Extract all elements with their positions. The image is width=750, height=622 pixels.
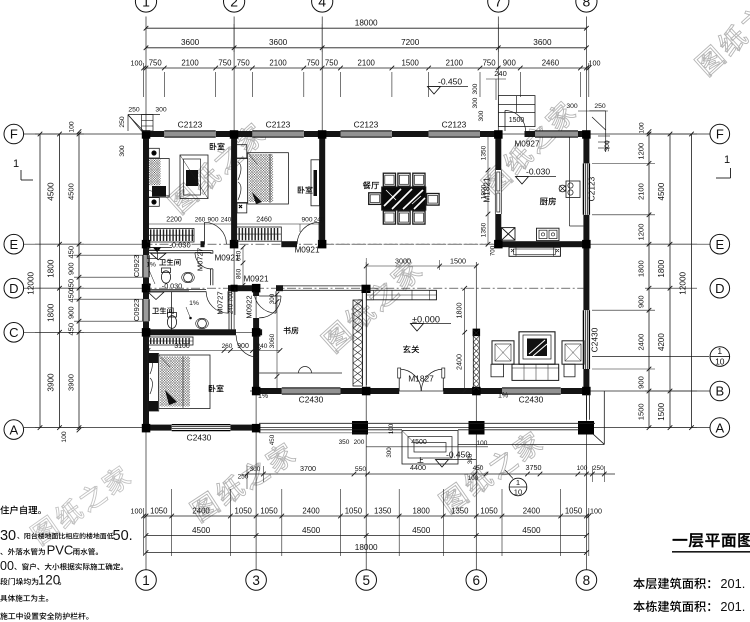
svg-text:300: 300 <box>467 453 474 464</box>
svg-text:3600: 3600 <box>269 38 288 47</box>
svg-text:100: 100 <box>590 506 602 515</box>
svg-text:700: 700 <box>490 245 497 256</box>
svg-text:M0727: M0727 <box>196 248 205 271</box>
svg-text:2100: 2100 <box>446 58 464 67</box>
svg-text:M0727: M0727 <box>216 291 225 314</box>
svg-text:900: 900 <box>301 217 312 224</box>
svg-text:1500: 1500 <box>402 58 420 67</box>
svg-text:2460: 2460 <box>256 217 272 224</box>
svg-text:2400: 2400 <box>637 334 646 351</box>
svg-text:1800: 1800 <box>657 259 666 277</box>
svg-text:200: 200 <box>354 439 365 446</box>
svg-text:1800: 1800 <box>455 303 464 319</box>
svg-text:4500: 4500 <box>412 526 431 535</box>
svg-text:300: 300 <box>269 293 276 304</box>
svg-text:1: 1 <box>13 158 19 170</box>
svg-text:C2430: C2430 <box>519 395 544 405</box>
svg-text:A: A <box>715 420 724 435</box>
svg-text:3600: 3600 <box>181 38 200 47</box>
svg-text:1: 1 <box>516 478 520 487</box>
svg-text:260: 260 <box>222 343 233 350</box>
svg-text:-0.030: -0.030 <box>162 282 182 291</box>
svg-text:2200: 2200 <box>166 217 182 224</box>
svg-text:2100: 2100 <box>181 58 199 67</box>
svg-text:3750: 3750 <box>526 463 542 472</box>
svg-text:2400: 2400 <box>302 506 320 515</box>
svg-text:4500: 4500 <box>522 526 541 535</box>
svg-text:450: 450 <box>269 434 276 445</box>
svg-text:860: 860 <box>236 268 243 279</box>
svg-text:3060: 3060 <box>269 333 276 348</box>
svg-text:750: 750 <box>149 58 163 67</box>
svg-text:240: 240 <box>314 217 325 224</box>
svg-text:1%: 1% <box>189 300 199 307</box>
svg-text:100: 100 <box>388 423 395 434</box>
svg-text:F: F <box>10 127 18 142</box>
svg-text:C2430: C2430 <box>299 395 324 405</box>
svg-text:C2123: C2123 <box>587 176 597 201</box>
svg-text:100: 100 <box>131 59 143 68</box>
svg-text:201.: 201. <box>720 599 745 614</box>
svg-text:300: 300 <box>119 145 126 157</box>
svg-text:C2430: C2430 <box>590 327 600 352</box>
svg-text:1: 1 <box>142 573 150 588</box>
svg-text:4400: 4400 <box>410 463 426 472</box>
svg-text:240: 240 <box>257 343 268 350</box>
svg-text:1500: 1500 <box>637 403 646 420</box>
svg-text:C0923: C0923 <box>132 255 141 277</box>
svg-text:450: 450 <box>67 290 76 303</box>
svg-text:1%: 1% <box>498 393 508 400</box>
svg-text:900: 900 <box>637 295 646 308</box>
svg-text:900: 900 <box>637 376 646 389</box>
svg-text:4500: 4500 <box>192 526 211 535</box>
svg-text:250: 250 <box>119 116 126 128</box>
svg-text:8: 8 <box>583 0 591 10</box>
svg-text:7: 7 <box>494 0 502 10</box>
svg-text:2: 2 <box>230 0 238 10</box>
svg-text:900: 900 <box>67 262 76 275</box>
svg-text:750: 750 <box>237 58 251 67</box>
svg-text:450: 450 <box>67 323 76 336</box>
svg-text:4500: 4500 <box>47 182 56 201</box>
svg-text:M0922: M0922 <box>245 295 254 318</box>
svg-text:1500: 1500 <box>657 402 666 420</box>
svg-text:750: 750 <box>483 58 497 67</box>
svg-text:D: D <box>9 281 18 296</box>
svg-text:100: 100 <box>131 506 143 515</box>
svg-text:750: 750 <box>218 58 232 67</box>
svg-text:240: 240 <box>228 303 235 314</box>
svg-text:350: 350 <box>339 439 350 446</box>
svg-text:A: A <box>9 422 18 437</box>
svg-text:1200: 1200 <box>637 143 646 160</box>
svg-text:C2123: C2123 <box>266 120 291 130</box>
svg-text:550: 550 <box>355 466 367 473</box>
svg-text:1050: 1050 <box>235 506 253 515</box>
svg-text:30: 30 <box>0 528 16 544</box>
svg-text:450: 450 <box>67 246 76 259</box>
svg-text:2100: 2100 <box>637 183 646 200</box>
svg-text:M0921: M0921 <box>294 246 319 255</box>
svg-text:1350: 1350 <box>481 145 488 160</box>
svg-text:C2123: C2123 <box>178 120 203 130</box>
svg-text:1050: 1050 <box>150 506 168 515</box>
svg-text:4500: 4500 <box>657 182 666 200</box>
svg-text:C2123: C2123 <box>354 120 379 130</box>
svg-text:300: 300 <box>472 97 479 108</box>
svg-text:E: E <box>715 237 724 252</box>
svg-text:201.: 201. <box>720 576 745 591</box>
svg-text:C: C <box>9 325 18 340</box>
svg-text:M0927: M0927 <box>514 140 539 149</box>
svg-text:300: 300 <box>386 447 393 458</box>
svg-text:100: 100 <box>61 431 68 443</box>
svg-text:300: 300 <box>155 107 167 114</box>
svg-text:2400: 2400 <box>523 506 541 515</box>
svg-text:3900: 3900 <box>47 373 56 392</box>
svg-text:D: D <box>715 281 724 296</box>
svg-text:240: 240 <box>221 217 232 224</box>
svg-text:3600: 3600 <box>533 38 552 47</box>
svg-text:50.: 50. <box>113 528 133 544</box>
svg-text:1%: 1% <box>258 393 268 400</box>
svg-text:1%: 1% <box>146 262 156 269</box>
svg-text:450: 450 <box>473 465 484 472</box>
svg-text:E: E <box>9 237 18 252</box>
svg-text:C0923: C0923 <box>132 299 141 321</box>
svg-text:100: 100 <box>589 59 601 68</box>
svg-text:1050: 1050 <box>565 506 583 515</box>
svg-text:100: 100 <box>477 440 488 447</box>
svg-text:900: 900 <box>503 58 517 67</box>
svg-text:-0.450: -0.450 <box>438 77 462 87</box>
svg-text:900: 900 <box>237 343 249 350</box>
svg-text:1050: 1050 <box>480 506 498 515</box>
svg-text:1350: 1350 <box>374 506 392 515</box>
svg-text:450: 450 <box>67 279 76 292</box>
svg-text:750: 750 <box>306 58 320 67</box>
svg-text:2100: 2100 <box>358 58 376 67</box>
svg-text:900: 900 <box>67 306 76 319</box>
svg-text:300: 300 <box>250 466 261 473</box>
svg-text:±0.000: ±0.000 <box>412 315 440 325</box>
svg-text:7200: 7200 <box>401 38 420 47</box>
svg-text:8: 8 <box>583 573 591 588</box>
svg-text:12000: 12000 <box>679 271 688 294</box>
svg-text:250: 250 <box>593 465 604 472</box>
svg-text:M0921: M0921 <box>214 254 239 263</box>
svg-text:1200: 1200 <box>637 224 646 241</box>
svg-text:PVC: PVC <box>47 543 74 558</box>
svg-text:1800: 1800 <box>637 260 646 277</box>
svg-text:2460: 2460 <box>542 58 560 67</box>
svg-text:1350: 1350 <box>481 222 488 237</box>
svg-text:4500: 4500 <box>302 526 321 535</box>
svg-text:1500: 1500 <box>509 117 525 124</box>
svg-text:M0921: M0921 <box>243 275 268 284</box>
svg-text:3100: 3100 <box>174 343 190 350</box>
svg-text:B: B <box>715 384 724 399</box>
svg-text:C2430: C2430 <box>187 433 212 443</box>
svg-text:4200: 4200 <box>657 333 666 351</box>
svg-text:3900: 3900 <box>67 374 76 391</box>
svg-text:3: 3 <box>252 573 260 588</box>
svg-text:2100: 2100 <box>269 58 287 67</box>
svg-text:2400: 2400 <box>455 354 464 370</box>
svg-text:C2123: C2123 <box>442 120 467 130</box>
svg-text:900: 900 <box>207 217 218 224</box>
svg-text:18000: 18000 <box>355 19 378 28</box>
svg-text:6: 6 <box>473 573 481 588</box>
svg-text:M1827: M1827 <box>408 374 434 384</box>
svg-text:F: F <box>716 127 724 142</box>
svg-text:250: 250 <box>594 103 606 110</box>
svg-text:700: 700 <box>228 291 235 302</box>
svg-text:1800: 1800 <box>47 303 56 322</box>
svg-text:100: 100 <box>639 122 646 134</box>
svg-text:1800: 1800 <box>481 184 488 199</box>
svg-text:4500: 4500 <box>67 183 76 200</box>
svg-text:1050: 1050 <box>260 506 278 515</box>
svg-text:300: 300 <box>472 83 479 94</box>
svg-text:300: 300 <box>566 103 578 110</box>
svg-text:1800: 1800 <box>413 506 431 515</box>
svg-text:5: 5 <box>362 573 370 588</box>
svg-text:1350: 1350 <box>451 506 469 515</box>
svg-text:1800: 1800 <box>47 259 56 278</box>
svg-text:100: 100 <box>69 121 76 133</box>
svg-text:4500: 4500 <box>411 439 427 446</box>
svg-text:1500: 1500 <box>450 257 466 266</box>
svg-text:-0.030: -0.030 <box>526 167 550 177</box>
svg-text:120: 120 <box>38 573 61 588</box>
svg-text:1: 1 <box>142 0 150 10</box>
svg-text:250: 250 <box>128 107 140 114</box>
svg-text:18000: 18000 <box>355 543 378 552</box>
svg-text:00: 00 <box>0 559 14 573</box>
svg-text:300: 300 <box>478 110 485 121</box>
svg-text:10: 10 <box>514 488 522 497</box>
svg-text:1: 1 <box>724 154 730 166</box>
svg-text:3000: 3000 <box>395 257 411 266</box>
svg-text:1050: 1050 <box>345 506 363 515</box>
svg-text:100: 100 <box>577 465 588 472</box>
svg-text:1: 1 <box>717 346 722 356</box>
svg-text:12000: 12000 <box>27 271 36 294</box>
svg-text:300: 300 <box>604 140 611 152</box>
svg-text:10: 10 <box>715 357 725 367</box>
svg-text:2400: 2400 <box>192 506 210 515</box>
svg-text:750: 750 <box>325 58 339 67</box>
svg-text:260: 260 <box>195 217 206 224</box>
svg-text:3700: 3700 <box>300 464 316 473</box>
svg-text:4: 4 <box>318 0 326 10</box>
